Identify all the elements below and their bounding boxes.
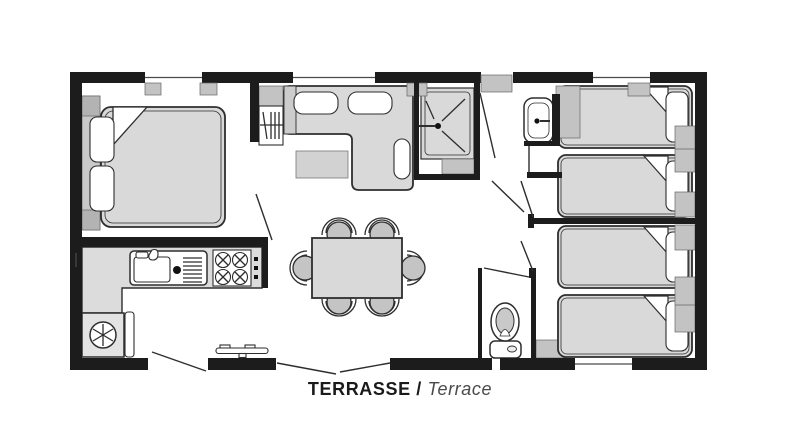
floor-plan-drawing bbox=[0, 0, 800, 434]
vent-window bbox=[481, 75, 512, 92]
window-sill bbox=[628, 83, 650, 96]
bedrooms-partition bbox=[530, 218, 695, 224]
entrance-door bbox=[152, 352, 206, 371]
window-sill bbox=[200, 83, 217, 95]
entrance-door-leaf bbox=[125, 312, 134, 357]
pillow-icon bbox=[90, 166, 114, 211]
shower-wall bbox=[474, 82, 480, 180]
wc-room bbox=[490, 303, 566, 358]
pillow-icon bbox=[90, 117, 114, 162]
wardrobe-icon bbox=[259, 86, 283, 145]
shower-step bbox=[442, 159, 474, 174]
shower-room bbox=[419, 88, 474, 174]
kitchen bbox=[82, 247, 262, 357]
single-bed-4 bbox=[558, 295, 692, 357]
sofa-cushion bbox=[348, 92, 392, 114]
caption-primary: TERRASSE / bbox=[308, 379, 422, 399]
shower-drain bbox=[435, 123, 441, 129]
bedside-shelf bbox=[82, 210, 100, 230]
terrace-caption: TERRASSE / Terrace bbox=[0, 379, 800, 400]
caption-secondary: Terrace bbox=[428, 379, 493, 399]
bedroom-door bbox=[256, 194, 272, 240]
washbasin-icon bbox=[524, 98, 553, 143]
bedroom-b-door bbox=[521, 241, 533, 271]
fridge-icon bbox=[82, 313, 124, 357]
living-room bbox=[284, 86, 413, 190]
sofa-bolster bbox=[394, 139, 410, 179]
floor-plan: TERRASSE / Terrace bbox=[0, 0, 800, 434]
right-wall bbox=[695, 72, 707, 370]
bedroom-a-door bbox=[492, 181, 524, 212]
wc-wall bbox=[531, 268, 536, 358]
nightstand-icon bbox=[675, 126, 695, 172]
patio-door-right bbox=[340, 363, 390, 372]
kitchen-sink-icon bbox=[130, 250, 207, 286]
single-bed-2 bbox=[558, 155, 692, 217]
kitchen-partition bbox=[70, 237, 268, 247]
dining-chair bbox=[401, 251, 425, 285]
patio-door-left bbox=[277, 363, 336, 374]
shower-wall bbox=[414, 174, 480, 180]
shower-door bbox=[480, 93, 495, 158]
wc-door bbox=[484, 268, 529, 277]
stove-icon bbox=[213, 250, 258, 286]
bedside-shelf bbox=[82, 96, 100, 116]
faucet-icon bbox=[173, 266, 181, 274]
single-bed-3 bbox=[558, 226, 692, 288]
nightstand-icon bbox=[675, 225, 695, 250]
sofa-cushion bbox=[294, 92, 338, 114]
bench-icon bbox=[216, 345, 268, 358]
bedroom-partition bbox=[250, 82, 259, 142]
left-wall bbox=[70, 72, 82, 370]
nightstand-icon bbox=[675, 277, 695, 332]
nightstand-icon bbox=[675, 192, 695, 217]
shower-tray-icon bbox=[421, 88, 474, 159]
soap-dish-icon bbox=[136, 252, 148, 258]
double-bed-icon bbox=[82, 96, 225, 230]
window-sill bbox=[145, 83, 161, 95]
dining-table-icon bbox=[312, 238, 402, 298]
sofa-armrest bbox=[284, 86, 296, 134]
shower-wall bbox=[414, 82, 419, 180]
wc-wall bbox=[478, 268, 482, 358]
toilet-icon bbox=[490, 303, 521, 358]
dining-area bbox=[290, 218, 425, 316]
coffee-table-icon bbox=[296, 151, 348, 178]
